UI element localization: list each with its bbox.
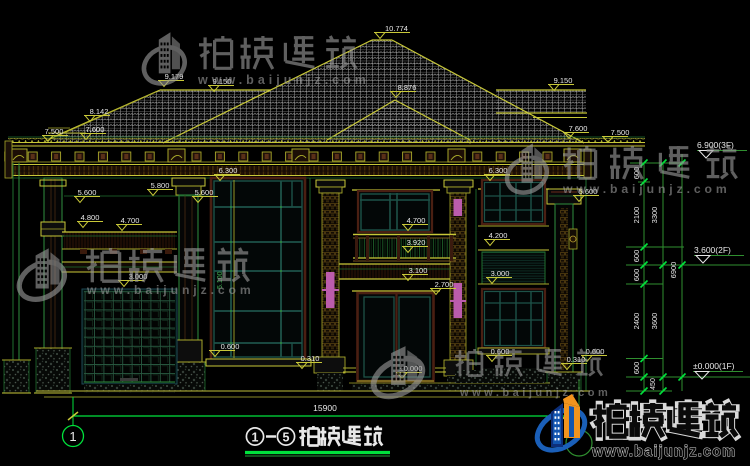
svg-text:6.300: 6.300 (489, 166, 508, 175)
svg-text:5.800: 5.800 (151, 181, 170, 190)
svg-text:3600: 3600 (650, 313, 659, 330)
svg-text:3.920: 3.920 (407, 238, 426, 247)
svg-text:www.baijunjz.com: www.baijunjz.com (562, 182, 731, 196)
svg-text:4.700: 4.700 (407, 216, 426, 225)
svg-text:±0.000(1F): ±0.000(1F) (693, 361, 735, 371)
svg-text:6.300: 6.300 (219, 166, 238, 175)
svg-text:10.774: 10.774 (385, 24, 408, 33)
svg-text:3300: 3300 (650, 207, 659, 224)
svg-text:600: 600 (632, 250, 641, 263)
svg-text:7.500: 7.500 (611, 128, 630, 137)
svg-text:www.baijunjz.com: www.baijunjz.com (86, 283, 255, 297)
svg-text:www.baijunjz.com: www.baijunjz.com (197, 73, 370, 87)
svg-text:8.876: 8.876 (398, 83, 417, 92)
svg-text:3.100: 3.100 (409, 266, 428, 275)
svg-text:5.600: 5.600 (78, 188, 97, 197)
svg-text:1: 1 (69, 429, 76, 444)
svg-text:0.310: 0.310 (301, 354, 320, 363)
svg-text:600: 600 (632, 362, 641, 375)
svg-text:450: 450 (650, 378, 657, 390)
svg-text:2.700: 2.700 (435, 280, 454, 289)
svg-text:5: 5 (283, 431, 290, 445)
svg-text:www.baijunjz.com: www.baijunjz.com (591, 444, 736, 460)
svg-text:7.600: 7.600 (86, 125, 105, 134)
svg-text:3.600(2F): 3.600(2F) (694, 245, 731, 255)
svg-text:7.500: 7.500 (45, 127, 64, 136)
svg-text:9.150: 9.150 (554, 76, 573, 85)
svg-text:3.000: 3.000 (491, 269, 510, 278)
svg-text:600: 600 (632, 269, 641, 282)
svg-text:1: 1 (252, 431, 259, 445)
svg-text:15900: 15900 (313, 403, 337, 413)
svg-text:4.800: 4.800 (81, 213, 100, 222)
svg-text:8.142: 8.142 (90, 107, 109, 116)
svg-text:5.600: 5.600 (195, 188, 214, 197)
svg-text:0.600: 0.600 (221, 342, 240, 351)
svg-text:2100: 2100 (632, 207, 641, 224)
svg-text:4.200: 4.200 (489, 231, 508, 240)
svg-text:6900: 6900 (669, 262, 678, 279)
svg-text:2400: 2400 (632, 313, 641, 330)
svg-text:www.baijunjz.com: www.baijunjz.com (459, 387, 611, 399)
svg-text:7.600: 7.600 (569, 124, 588, 133)
svg-text:4.700: 4.700 (121, 216, 140, 225)
